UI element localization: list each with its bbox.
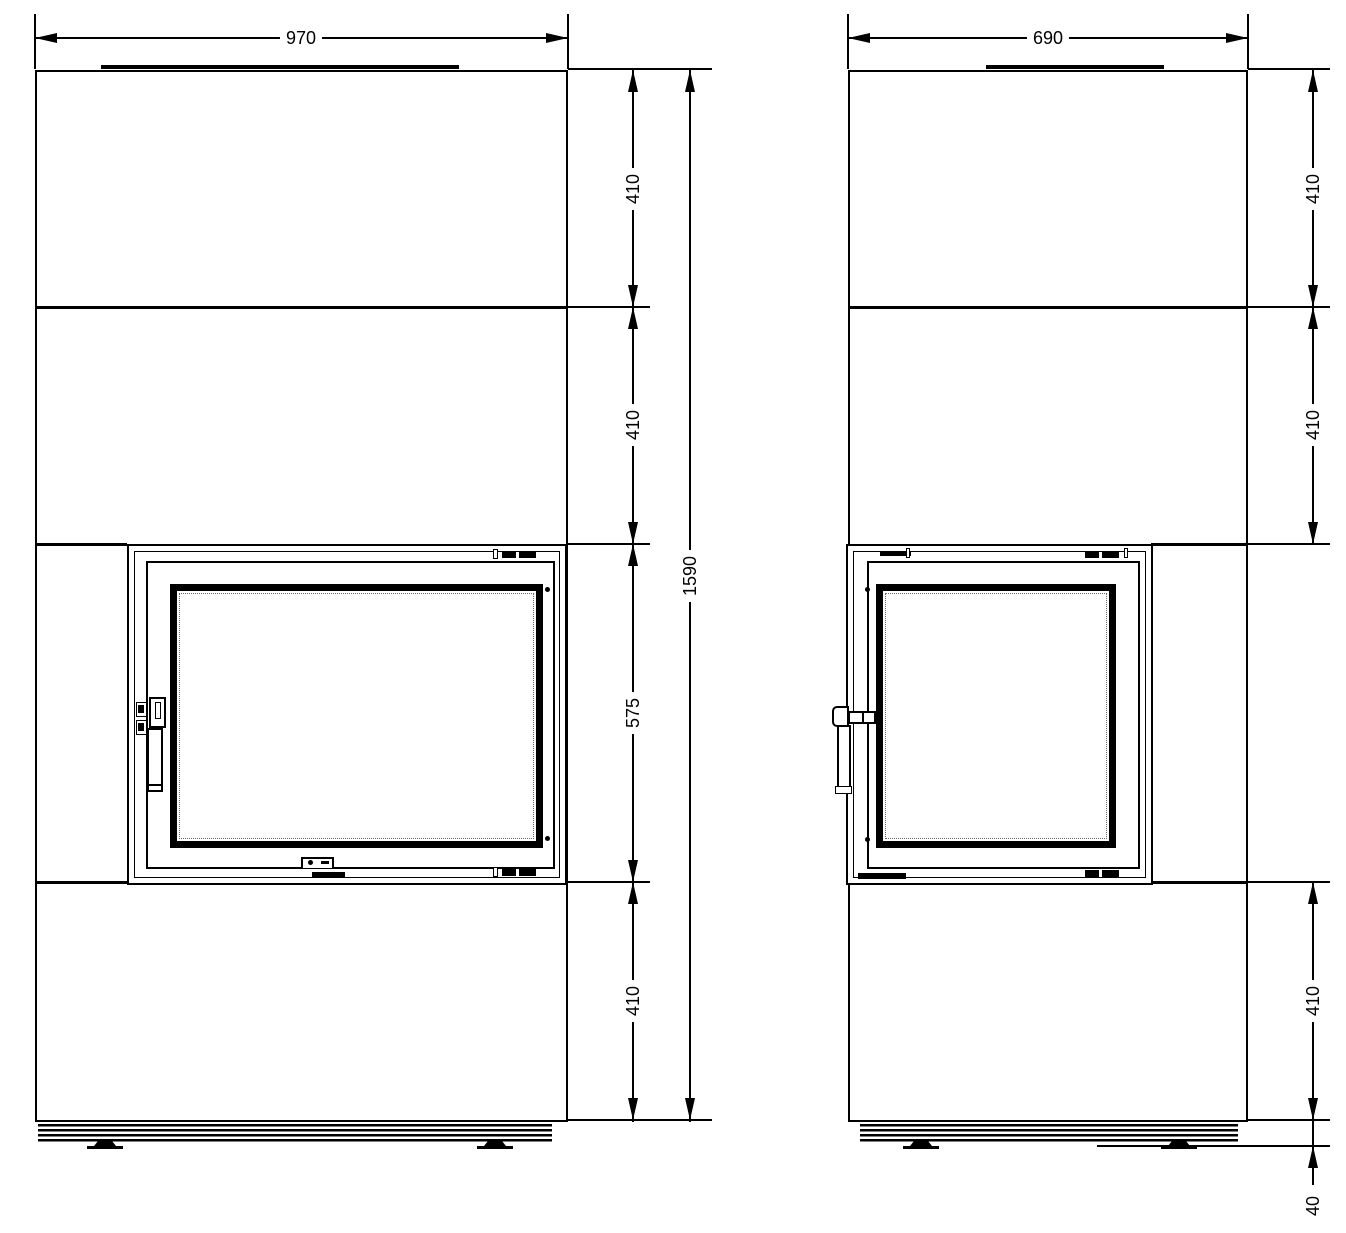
front-segment-label-1: 410 [622,168,644,210]
front-bottom-latch-pin [308,860,313,865]
side-handle-pivot [832,706,849,727]
arrowhead-down [1308,522,1318,544]
side-top-right-block-a [1085,551,1099,558]
extension-line-floor [1097,1145,1330,1147]
front-segment-label-2: 410 [622,404,644,446]
front-top-plate-seam [101,65,459,69]
side-left-foot-base [903,1146,939,1149]
side-handle-connector-divider [862,712,864,723]
front-handle-bar-cap [149,784,161,786]
front-bottom-latch-cover [301,857,334,868]
front-hinge-top-block-a [502,551,516,558]
side-segment-label-1: 410 [1302,168,1324,210]
front-hinge-pin-lower [545,836,550,841]
front-bottom-latch-plate [312,872,345,878]
front-left-foot-base [87,1146,123,1149]
front-right-foot-base [477,1146,513,1149]
side-bottom-right-block-b [1102,870,1119,877]
front-handle-bracket-mark-lower [138,723,144,731]
side-segment-label-3: 410 [1302,980,1324,1022]
side-hinge-pin-lower [865,837,870,842]
side-door-glass-gasket-stipple [885,593,1107,839]
arrowhead-left [848,33,870,43]
dimension-line [632,70,634,1122]
side-panel-joint-door-top [1151,543,1248,546]
arrowhead-down [628,1098,638,1120]
front-panel-joint-upper [35,306,568,309]
arrowhead-up [628,544,638,566]
side-handle-bar-cap [835,786,852,794]
side-bottom-right-block-a [1085,870,1099,877]
front-bottom-latch-dash [321,861,329,864]
side-hinge-pin-upper [865,587,870,592]
side-bottom-left-strip [858,873,906,879]
side-panel-joint-door-bottom [1151,881,1248,884]
front-handle-bracket-mark-upper [138,705,144,713]
front-overall-height-label: 1590 [679,550,701,602]
arrowhead-down [1308,285,1318,307]
front-hinge-bottom-clip [493,867,498,877]
side-door-handle-bar [837,725,851,788]
arrowhead-up [628,307,638,329]
side-top-plate-seam [986,65,1164,69]
front-door-glass-gasket-stipple [179,593,534,839]
front-hinge-bottom-block-b [519,869,536,876]
arrowhead-down [628,285,638,307]
side-segment-label-2: 410 [1302,404,1324,446]
front-hinge-pin-upper [545,587,550,592]
side-panel-joint-upper [848,306,1248,309]
arrowhead-down [685,1098,695,1120]
side-depth-label: 690 [1027,27,1069,49]
arrowhead-up [1308,307,1318,329]
dimension-line [1312,882,1314,1185]
arrowhead-up-plinth [1308,1146,1318,1168]
arrowhead-left [35,33,57,43]
front-hinge-top-clip [493,549,498,559]
arrowhead-up [628,882,638,904]
side-top-right-block-b [1102,551,1119,558]
front-segment-label-3: 575 [622,692,644,734]
front-width-label: 970 [280,27,322,49]
arrowhead-down [1308,1098,1318,1120]
arrowhead-down [628,860,638,882]
front-segment-label-4: 410 [622,980,644,1022]
front-hinge-bottom-block-a [502,869,516,876]
side-top-left-clip [906,548,910,558]
front-panel-joint-door-top [36,543,127,546]
arrowhead-right [546,33,568,43]
arrowhead-up [1308,882,1318,904]
front-panel-joint-door-bottom [36,881,127,884]
arrowhead-up [685,70,695,92]
front-door-handle-bar [147,728,163,792]
arrowhead-up [628,70,638,92]
technical-drawing-canvas: 970 690 410 410 575 410 1590 [0,0,1346,1233]
side-plinth-height-label: 40 [1302,1190,1324,1222]
side-top-right-clip [1124,548,1128,558]
front-handle-latch-slot [155,702,161,719]
front-hinge-top-block-b [519,551,536,558]
arrowhead-up [1308,70,1318,92]
arrowhead-right [1226,33,1248,43]
arrowhead-down [628,522,638,544]
